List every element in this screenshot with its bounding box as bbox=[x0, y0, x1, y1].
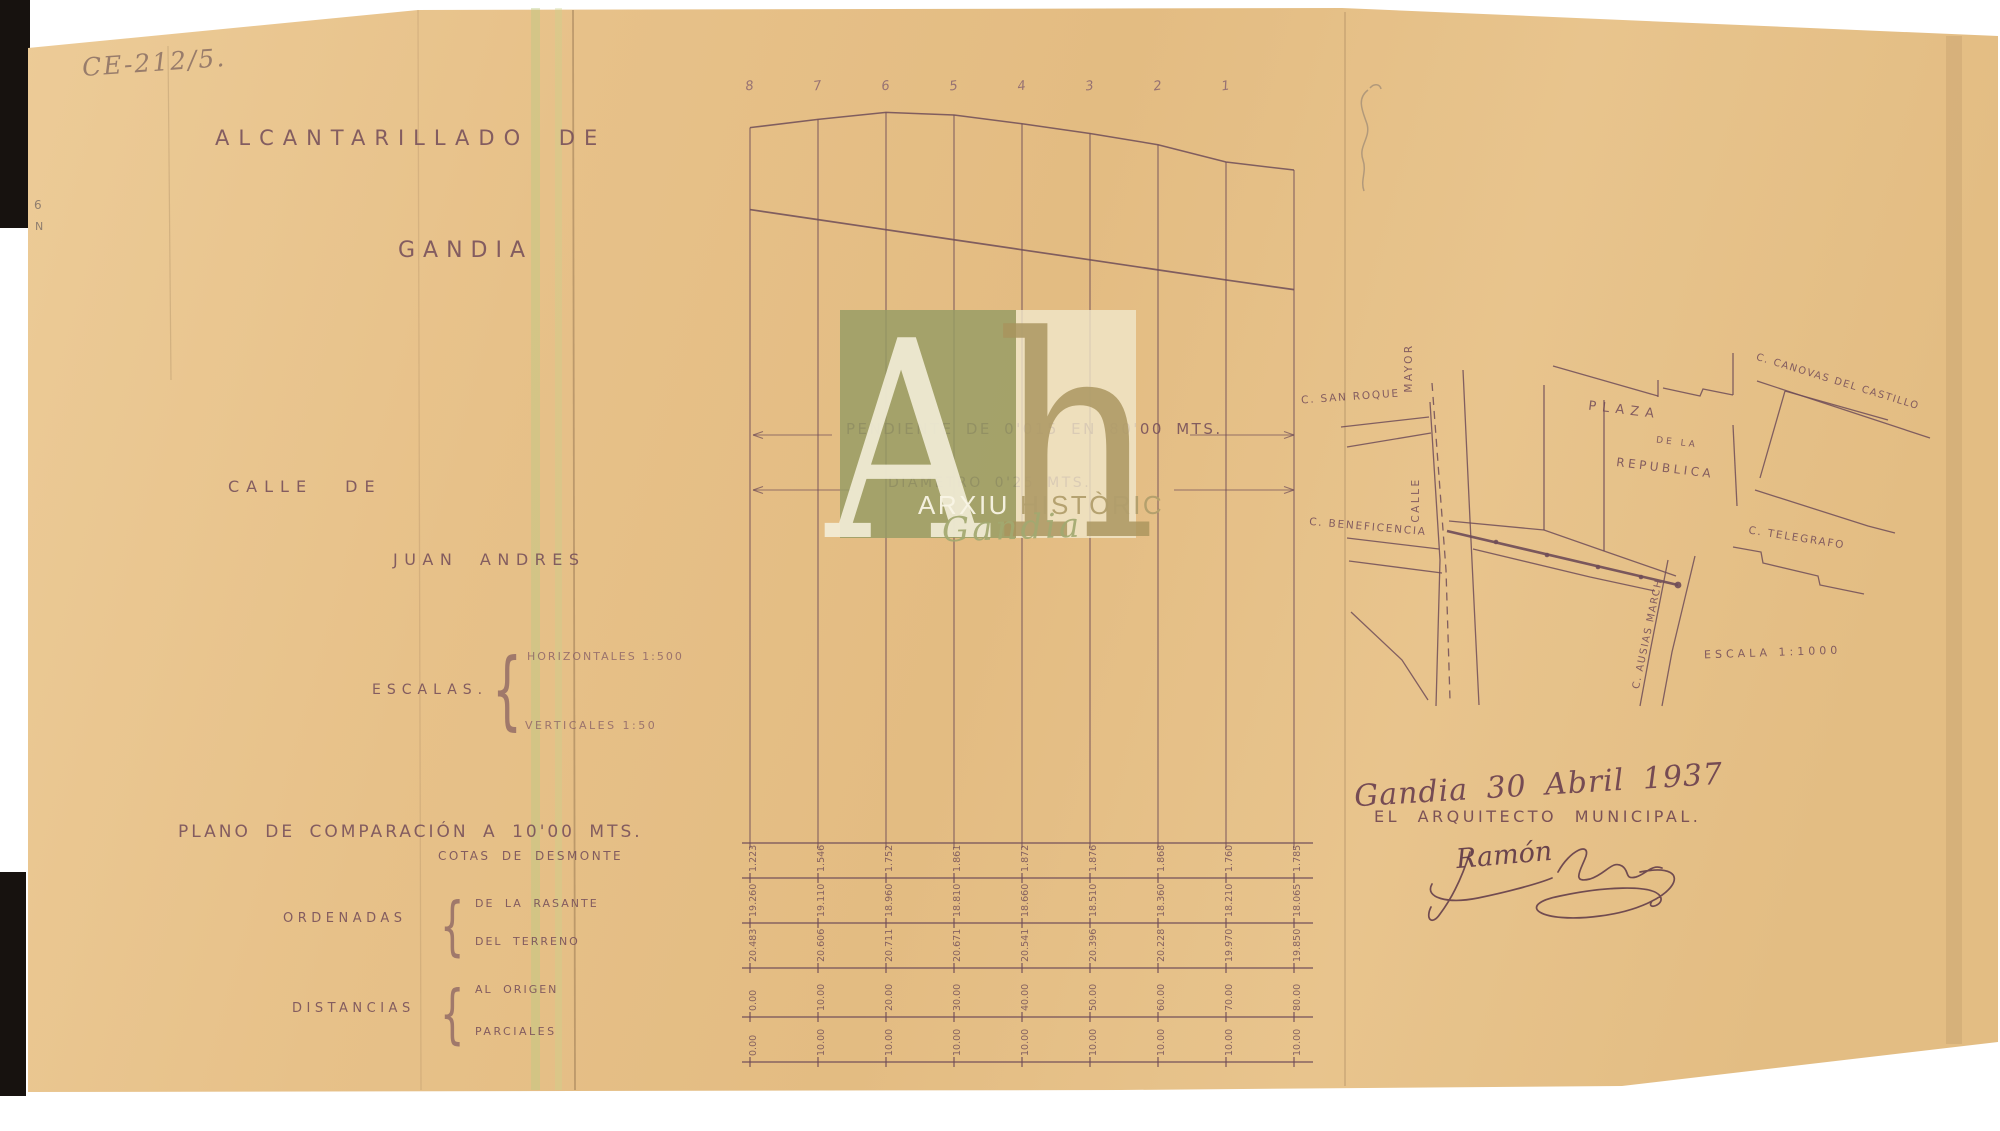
table-cell-value: 20.671 bbox=[952, 929, 963, 962]
sewer-manhole-dot bbox=[1596, 565, 1601, 570]
street-label-line2: JUAN ANDRES bbox=[393, 550, 586, 569]
table-cell-value: 20.541 bbox=[1020, 929, 1031, 962]
table-cell-value: 1.785 bbox=[1292, 845, 1303, 872]
table-cell-value: 18.660 bbox=[1020, 884, 1031, 917]
horizontal-scale-value: HORIZONTALES 1:500 bbox=[527, 650, 684, 663]
scales-brace: { bbox=[492, 640, 522, 740]
distances-brace: { bbox=[440, 978, 464, 1052]
table-cell-value: 18.510 bbox=[1088, 884, 1099, 917]
table-cell-value: 0.00 bbox=[748, 990, 759, 1011]
sewer-manhole-dot bbox=[1639, 575, 1644, 580]
sewer-manhole-dot bbox=[1494, 540, 1499, 545]
table-cell-value: 20.606 bbox=[816, 929, 827, 962]
table-cell-value: 0.00 bbox=[748, 1035, 759, 1056]
table-cell-value: 10.00 bbox=[1224, 1029, 1235, 1056]
table-cell-value: 18.960 bbox=[884, 884, 895, 917]
plan-linework: 87654321 1.2231.5461.7521.8611.8721.8761… bbox=[0, 0, 2000, 1131]
table-cell-value: 1.752 bbox=[884, 845, 895, 872]
signer-title: EL ARQUITECTO MUNICIPAL. bbox=[1374, 807, 1701, 826]
table-cell-value: 18.065 bbox=[1292, 884, 1303, 917]
table-cell-value: 19.110 bbox=[816, 884, 827, 917]
table-cell-value: 19.850 bbox=[1292, 929, 1303, 962]
table-cell-value: 10.00 bbox=[1020, 1029, 1031, 1056]
table-cell-value: 10.00 bbox=[1292, 1029, 1303, 1056]
cut-levels-note: COTAS DE DESMONTE bbox=[438, 849, 623, 863]
distances-item-origen: AL ORIGEN bbox=[475, 983, 558, 996]
table-cell-value: 10.00 bbox=[952, 1029, 963, 1056]
table-cell-value: 1.861 bbox=[952, 845, 963, 872]
margin-mark-2: N bbox=[35, 220, 43, 233]
table-cell-value: 80.00 bbox=[1292, 984, 1303, 1011]
table-cell-value: 20.483 bbox=[748, 929, 759, 962]
paper-sheet bbox=[28, 8, 1998, 1092]
plan-title-line2: GANDIA bbox=[398, 238, 533, 263]
table-cell-value: 40.00 bbox=[1020, 984, 1031, 1011]
table-cell-value: 1.868 bbox=[1156, 845, 1167, 872]
table-cell-value: 50.00 bbox=[1088, 984, 1099, 1011]
ordinates-brace: { bbox=[440, 890, 464, 964]
ordinates-item-terreno: DEL TERRENO bbox=[475, 935, 580, 948]
table-cell-value: 18.210 bbox=[1224, 884, 1235, 917]
map-street-mayor: MAYOR bbox=[1403, 343, 1415, 392]
scales-label: ESCALAS. bbox=[372, 682, 488, 698]
table-cell-value: 18.360 bbox=[1156, 884, 1167, 917]
table-cell-value: 1.546 bbox=[816, 845, 827, 872]
table-cell-value: 10.00 bbox=[884, 1029, 895, 1056]
ordinates-item-rasante: DE LA RASANTE bbox=[475, 897, 599, 910]
table-cell-value: 1.223 bbox=[748, 845, 759, 872]
map-street-calle-word: CALLE bbox=[1410, 477, 1422, 522]
table-cell-value: 70.00 bbox=[1224, 984, 1235, 1011]
table-cell-value: 10.00 bbox=[816, 1029, 827, 1056]
table-cell-value: 1.760 bbox=[1224, 845, 1235, 872]
slope-annotation: PENDIENTE DE 0'015 EN 80'00 MTS. bbox=[846, 420, 1223, 438]
margin-mark-1: 6 bbox=[34, 198, 42, 212]
scanned-plan-document: 87654321 1.2231.5461.7521.8611.8721.8761… bbox=[0, 0, 2000, 1131]
table-cell-value: 20.711 bbox=[884, 929, 895, 962]
distances-item-parciales: PARCIALES bbox=[475, 1025, 557, 1038]
table-cell-value: 30.00 bbox=[952, 984, 963, 1011]
table-cell-value: 20.228 bbox=[1156, 929, 1167, 962]
table-cell-value: 20.00 bbox=[884, 984, 895, 1011]
table-cell-value: 19.970 bbox=[1224, 929, 1235, 962]
ordinates-label: ORDENADAS bbox=[283, 911, 407, 926]
table-cell-value: 10.00 bbox=[1088, 1029, 1099, 1056]
table-cell-value: 1.876 bbox=[1088, 845, 1099, 872]
table-cell-value: 10.00 bbox=[816, 984, 827, 1011]
plan-title-line1: ALCANTARILLADO DE bbox=[215, 126, 606, 150]
table-cell-value: 20.396 bbox=[1088, 929, 1099, 962]
table-cell-value: 10.00 bbox=[1156, 1029, 1167, 1056]
distances-label: DISTANCIAS bbox=[292, 1001, 415, 1016]
diameter-annotation: DIAMETRO 0'25 MTS. bbox=[888, 475, 1091, 491]
street-label-line1: CALLE DE bbox=[228, 477, 382, 496]
table-cell-value: 18.810 bbox=[952, 884, 963, 917]
table-cell-value: 1.872 bbox=[1020, 845, 1031, 872]
comparison-plane-label: PLANO DE COMPARACIÓN A 10'00 MTS. bbox=[178, 822, 643, 842]
vertical-scale-value: VERTICALES 1:50 bbox=[525, 719, 657, 732]
table-cell-value: 19.260 bbox=[748, 884, 759, 917]
sewer-manhole-dot bbox=[1545, 553, 1550, 558]
sewer-manhole-dot bbox=[1675, 582, 1682, 589]
table-cell-value: 60.00 bbox=[1156, 984, 1167, 1011]
